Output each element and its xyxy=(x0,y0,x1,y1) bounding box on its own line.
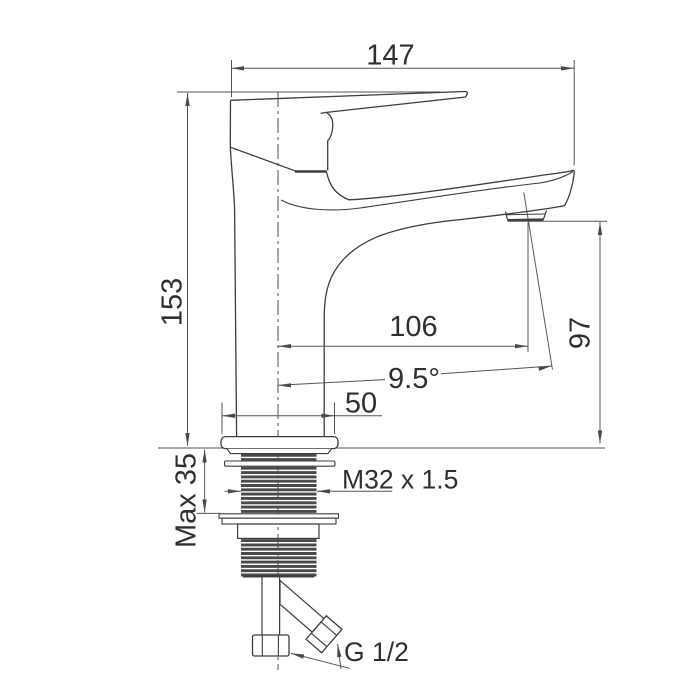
svg-text:106: 106 xyxy=(389,311,437,343)
svg-text:97: 97 xyxy=(565,317,597,349)
svg-text:153: 153 xyxy=(157,278,189,326)
svg-text:Max 35: Max 35 xyxy=(171,453,203,548)
svg-text:50: 50 xyxy=(345,388,377,420)
svg-text:M32 x 1.5: M32 x 1.5 xyxy=(342,465,458,495)
svg-text:G 1/2: G 1/2 xyxy=(344,637,409,667)
svg-text:9.5°: 9.5° xyxy=(388,363,440,395)
svg-text:147: 147 xyxy=(366,40,414,72)
